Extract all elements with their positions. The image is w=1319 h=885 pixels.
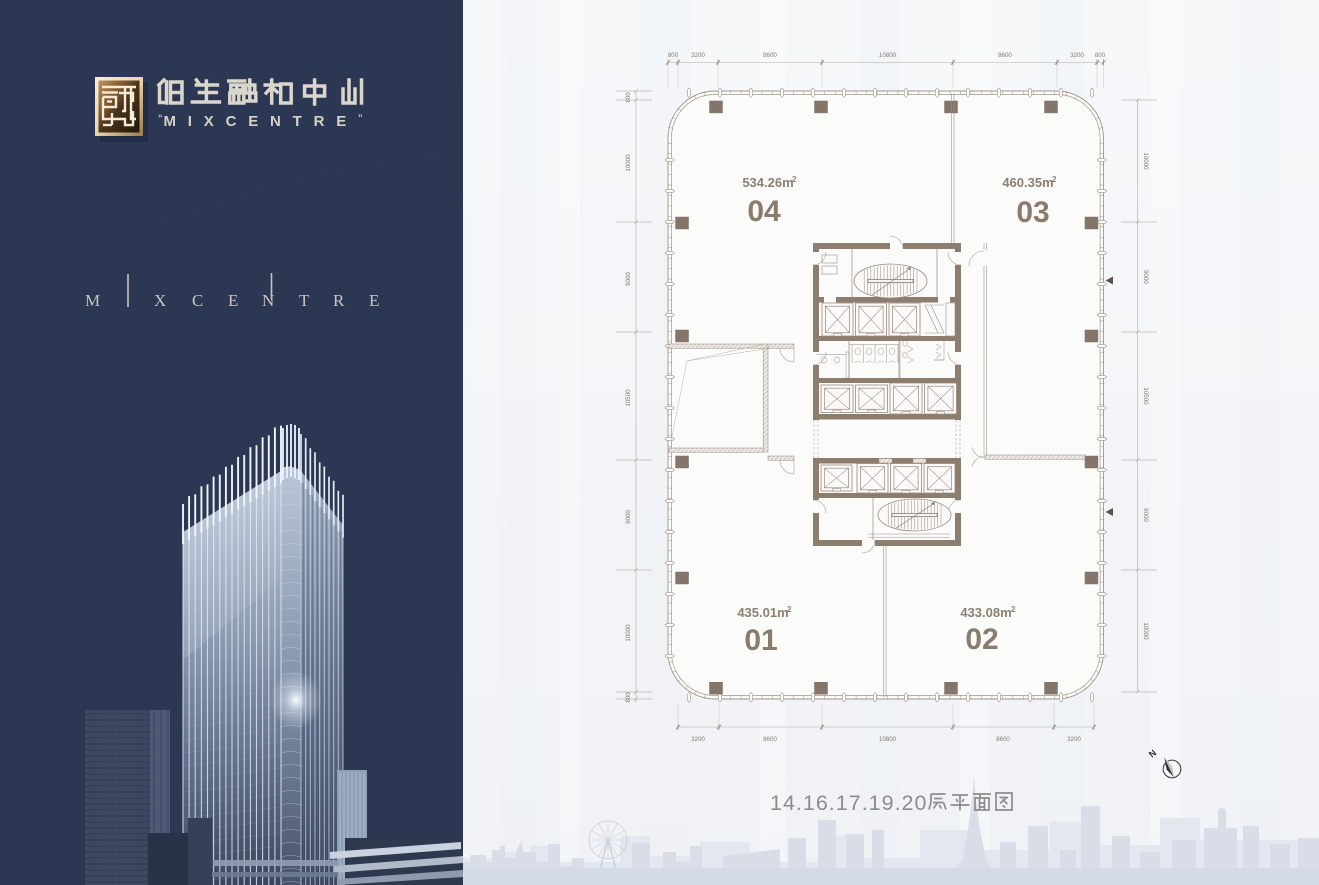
- svg-text:2: 2: [1011, 605, 1016, 614]
- svg-text:M: M: [85, 291, 100, 310]
- svg-text:E: E: [369, 291, 379, 310]
- svg-text:C: C: [192, 291, 203, 310]
- svg-text:433.08m: 433.08m: [960, 605, 1011, 620]
- svg-text:2: 2: [792, 175, 797, 184]
- svg-text:N: N: [262, 291, 274, 310]
- svg-text:8600: 8600: [763, 52, 777, 59]
- svg-text:10500: 10500: [625, 389, 632, 407]
- svg-text:10500: 10500: [1142, 387, 1149, 405]
- svg-text:800: 800: [625, 92, 632, 103]
- svg-text:10000: 10000: [625, 154, 632, 172]
- svg-text:3200: 3200: [1070, 52, 1084, 59]
- svg-text:534.26m: 534.26m: [742, 175, 793, 190]
- svg-text:9000: 9000: [1142, 270, 1149, 284]
- svg-text:01: 01: [744, 624, 777, 657]
- svg-text:02: 02: [965, 623, 998, 656]
- svg-text:2: 2: [787, 605, 792, 614]
- svg-text:2: 2: [1052, 175, 1057, 184]
- svg-text:10000: 10000: [1142, 622, 1149, 640]
- svg-text:435.01m: 435.01m: [737, 605, 788, 620]
- svg-text:800: 800: [668, 52, 679, 59]
- svg-text:R: R: [333, 291, 345, 310]
- svg-text:800: 800: [625, 692, 632, 703]
- svg-text:9000: 9000: [625, 272, 632, 286]
- svg-text:9000: 9000: [625, 510, 632, 524]
- svg-text:10800: 10800: [879, 52, 897, 59]
- svg-text:460.35m: 460.35m: [1002, 175, 1053, 190]
- svg-text:3200: 3200: [691, 52, 705, 59]
- svg-text:8600: 8600: [996, 736, 1010, 743]
- svg-text:03: 03: [1016, 196, 1049, 229]
- svg-text:800: 800: [1095, 52, 1106, 59]
- svg-text:X: X: [154, 291, 166, 310]
- svg-text:10800: 10800: [879, 736, 897, 743]
- svg-text:8600: 8600: [763, 736, 777, 743]
- svg-text:3200: 3200: [691, 736, 705, 743]
- svg-text:14.16.17.19.20: 14.16.17.19.20: [770, 791, 927, 815]
- svg-text:10000: 10000: [1142, 152, 1149, 170]
- svg-text:3200: 3200: [1067, 736, 1081, 743]
- svg-text:E: E: [228, 291, 238, 310]
- svg-text:10000: 10000: [625, 624, 632, 642]
- svg-text:9000: 9000: [1142, 508, 1149, 522]
- svg-text:04: 04: [747, 195, 781, 228]
- svg-text:T: T: [299, 291, 310, 310]
- svg-text:8600: 8600: [998, 52, 1012, 59]
